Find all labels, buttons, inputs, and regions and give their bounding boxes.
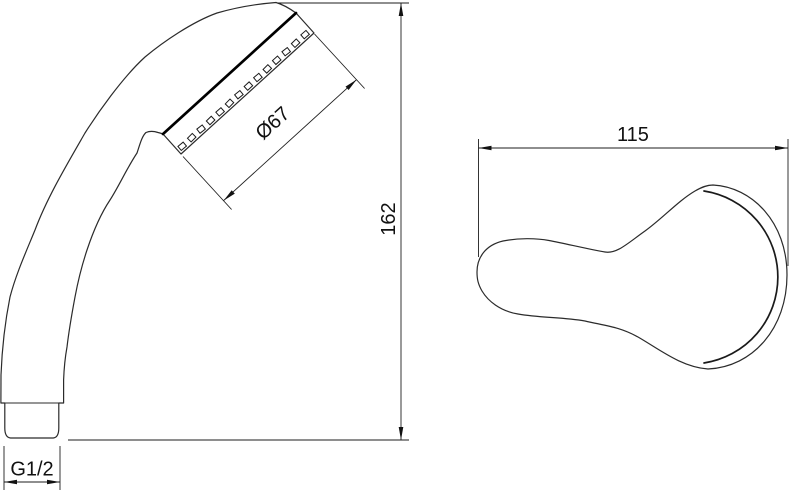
dim-thread-size: G1/2 xyxy=(4,446,60,490)
head-width-label: 115 xyxy=(617,124,649,146)
technical-drawing: Ø67 162 G1/2 115 xyxy=(0,0,790,490)
arrowhead xyxy=(399,427,404,440)
arrowhead xyxy=(399,3,404,16)
top-view xyxy=(477,185,787,369)
extension-line xyxy=(183,157,232,210)
head-outline xyxy=(477,185,787,369)
arrowhead xyxy=(224,190,235,200)
drawing-canvas: Ø67 162 G1/2 115 xyxy=(0,0,790,490)
arrowhead xyxy=(775,146,788,151)
arrowhead xyxy=(479,146,492,151)
overall-height-label: 162 xyxy=(378,202,400,235)
side-view xyxy=(1,3,314,439)
thread-size-label: G1/2 xyxy=(10,459,53,481)
extension-line xyxy=(315,34,365,89)
face-diameter-label: Ø67 xyxy=(252,103,295,145)
